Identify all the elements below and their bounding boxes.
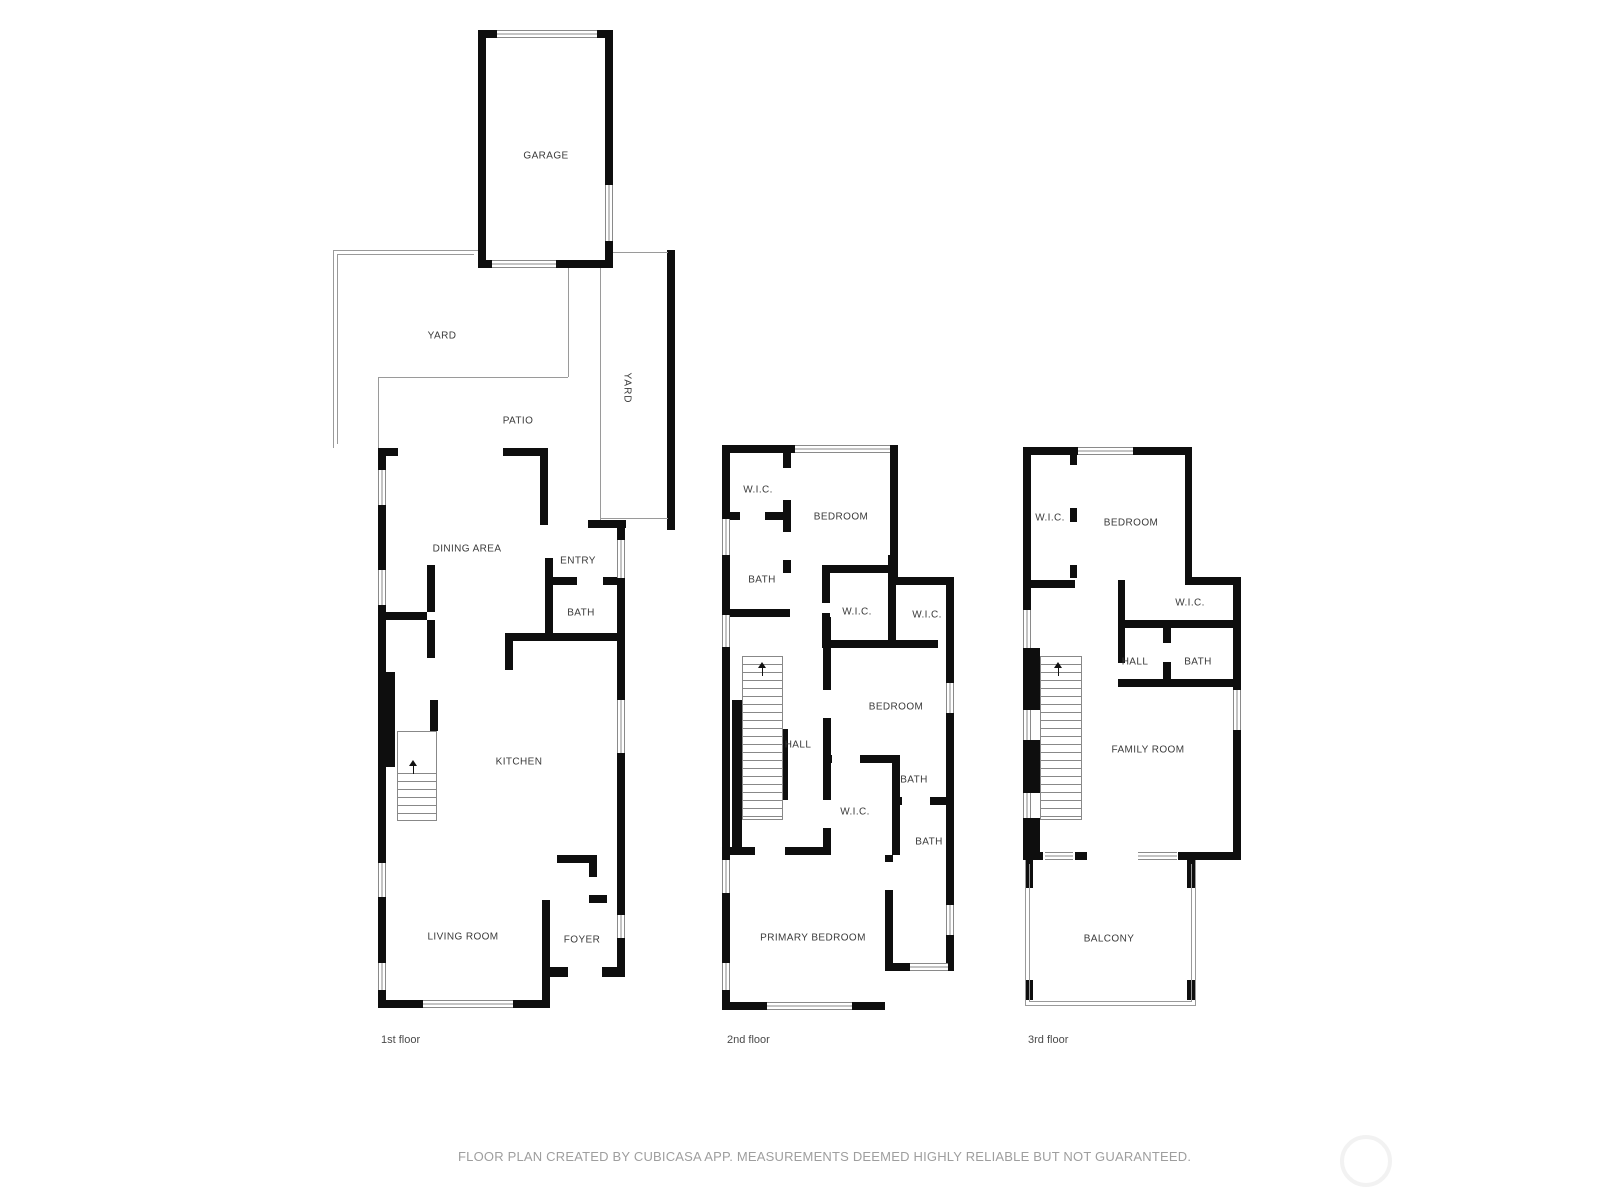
boundary-line — [1025, 860, 1026, 1006]
wall — [822, 565, 897, 573]
wall — [542, 967, 568, 977]
wall — [545, 558, 553, 641]
window-icon — [378, 963, 386, 990]
room-label-family-room: FAMILY ROOM — [1112, 745, 1185, 756]
wall — [822, 640, 897, 648]
wall — [783, 500, 791, 532]
wall — [602, 967, 625, 977]
window-icon — [722, 963, 730, 990]
wall — [722, 445, 795, 453]
wall — [1118, 679, 1240, 687]
window-icon — [722, 860, 730, 893]
room-label-bath-2f-a: BATH — [748, 575, 776, 586]
wall — [783, 560, 791, 573]
wall — [823, 755, 832, 763]
window-icon — [946, 683, 954, 713]
room-label-wic-3f-b: W.I.C. — [1175, 598, 1205, 609]
room-label-wic-3f-a: W.I.C. — [1035, 513, 1065, 524]
window-icon — [378, 470, 386, 505]
wall — [617, 520, 625, 540]
window-icon — [1078, 447, 1133, 455]
room-label-wic-2f-a: W.I.C. — [743, 485, 773, 496]
window-icon — [617, 540, 625, 578]
stair-direction-arrow-icon — [1058, 667, 1059, 676]
window-icon — [910, 963, 948, 971]
window-icon — [946, 905, 954, 935]
wall — [897, 640, 938, 648]
wall — [1178, 852, 1240, 860]
wall — [885, 855, 893, 862]
stair-treads — [1041, 657, 1081, 819]
room-label-balcony: BALCONY — [1084, 934, 1135, 945]
wall — [722, 445, 730, 519]
wall — [540, 448, 548, 525]
window-icon — [1023, 610, 1031, 648]
wall — [822, 565, 830, 603]
wall — [785, 847, 831, 855]
room-label-living-room: LIVING ROOM — [427, 932, 498, 943]
boundary-line — [1025, 1005, 1196, 1006]
room-label-bath-3f: BATH — [1184, 657, 1212, 668]
wall — [1023, 852, 1043, 860]
wall — [1023, 447, 1031, 580]
wall — [722, 609, 790, 617]
wall — [892, 757, 900, 855]
boundary-line — [1195, 860, 1196, 1006]
room-label-wic-2f-b: W.I.C. — [842, 607, 872, 618]
room-label-primary-bedroom: PRIMARY BEDROOM — [760, 933, 866, 944]
room-label-patio: PATIO — [503, 416, 534, 427]
wall — [946, 713, 954, 905]
window-icon — [1023, 793, 1031, 818]
room-label-wic-2f-c: W.I.C. — [912, 610, 942, 621]
staircase — [397, 731, 437, 821]
wall — [1075, 852, 1087, 860]
boundary-line — [1029, 1001, 1192, 1002]
wall — [378, 897, 386, 963]
boundary-line — [568, 268, 569, 377]
wall — [892, 797, 902, 805]
wall — [823, 828, 831, 847]
window-icon — [605, 185, 613, 241]
boundary-line — [378, 377, 379, 448]
window-icon — [617, 700, 625, 753]
boundary-line — [600, 268, 601, 520]
boundary-line — [378, 377, 568, 378]
staircase — [1040, 656, 1082, 820]
wall — [1233, 577, 1241, 690]
wall — [667, 250, 675, 530]
window-icon — [1233, 690, 1241, 730]
wall — [378, 767, 386, 863]
wall — [542, 900, 550, 1008]
room-label-bath-1f: BATH — [567, 608, 595, 619]
wall — [478, 30, 486, 268]
staircase — [742, 656, 783, 820]
wall — [823, 617, 831, 690]
room-label-yard-right: YARD — [622, 372, 633, 403]
watermark-circle-icon — [1340, 1135, 1392, 1187]
wall — [505, 633, 625, 641]
floor-caption-3rd: 3rd floor — [1028, 1034, 1068, 1046]
floorplan-canvas: GARAGE YARD PATIO YARD DINING AREA ENTRY… — [0, 0, 1600, 1200]
window-icon — [497, 30, 597, 38]
wall — [378, 505, 386, 570]
wall — [617, 578, 625, 700]
wall — [386, 612, 427, 620]
window-icon — [492, 260, 556, 268]
window-icon — [722, 519, 730, 555]
room-label-bath-2f-b: BATH — [900, 775, 928, 786]
room-label-bath-2f-c: BATH — [915, 837, 943, 848]
boundary-line — [613, 252, 668, 253]
wall — [722, 555, 730, 615]
window-icon — [617, 915, 625, 938]
window-icon — [722, 615, 730, 647]
floor-caption-1st: 1st floor — [381, 1034, 420, 1046]
boundary-line — [1191, 864, 1192, 1002]
wall — [589, 863, 597, 877]
wall — [1070, 452, 1077, 465]
stair-treads — [398, 766, 436, 820]
wall — [1070, 508, 1077, 522]
window-icon — [378, 570, 386, 605]
window-icon — [767, 1002, 852, 1010]
wall — [505, 633, 513, 670]
wall — [1185, 577, 1240, 585]
room-label-entry: ENTRY — [560, 556, 596, 567]
wall — [617, 753, 625, 915]
wall — [427, 620, 435, 658]
wall — [1070, 565, 1077, 578]
wall — [1023, 580, 1075, 588]
footer-disclaimer: FLOOR PLAN CREATED BY CUBICASA APP. MEAS… — [458, 1149, 1191, 1164]
wall — [547, 577, 577, 585]
wall — [589, 895, 607, 903]
wall — [732, 700, 742, 847]
window-icon — [1138, 852, 1177, 860]
window-icon — [378, 863, 386, 897]
wall — [378, 448, 398, 456]
wall — [783, 453, 791, 468]
wall — [378, 605, 386, 672]
boundary-line — [600, 518, 668, 519]
room-label-bedroom-2f-b: BEDROOM — [869, 702, 923, 713]
wall — [1023, 588, 1031, 610]
boundary-line — [333, 250, 334, 448]
floor-caption-2nd: 2nd floor — [727, 1034, 770, 1046]
room-label-kitchen: KITCHEN — [496, 757, 543, 768]
stair-direction-arrow-icon — [413, 765, 414, 774]
wall — [722, 647, 730, 860]
room-label-dining-area: DINING AREA — [433, 544, 502, 555]
wall — [427, 565, 435, 612]
stair-treads — [743, 657, 782, 819]
boundary-line — [337, 254, 474, 255]
wall — [557, 855, 597, 863]
room-label-hall-3f: HALL — [1122, 657, 1149, 668]
wall — [1133, 447, 1192, 455]
boundary-line — [1029, 864, 1030, 1002]
room-label-garage: GARAGE — [523, 151, 568, 162]
window-icon — [795, 445, 890, 453]
wall — [1233, 730, 1241, 860]
room-label-wic-2f-d: W.I.C. — [840, 807, 870, 818]
window-icon — [1023, 710, 1031, 740]
wall — [378, 672, 395, 767]
wall — [890, 577, 954, 585]
stair-direction-arrow-icon — [762, 667, 763, 676]
room-label-bedroom-3f: BEDROOM — [1104, 518, 1158, 529]
wall — [930, 797, 954, 805]
wall — [722, 893, 730, 963]
wall — [946, 577, 954, 683]
wall — [1023, 648, 1040, 710]
boundary-line — [333, 250, 478, 251]
wall — [1185, 447, 1192, 585]
window-icon — [423, 1000, 513, 1008]
wall — [1118, 620, 1240, 628]
window-icon — [1045, 852, 1073, 860]
room-label-yard-left: YARD — [428, 331, 457, 342]
wall — [1163, 628, 1171, 643]
boundary-line — [337, 254, 338, 444]
wall — [885, 890, 893, 971]
room-label-hall-2f: HALL — [785, 740, 812, 751]
wall — [888, 555, 896, 648]
wall — [430, 700, 438, 731]
wall — [722, 847, 755, 855]
room-label-foyer: FOYER — [564, 935, 600, 946]
wall — [1023, 740, 1040, 793]
room-label-bedroom-2f-a: BEDROOM — [814, 512, 868, 523]
